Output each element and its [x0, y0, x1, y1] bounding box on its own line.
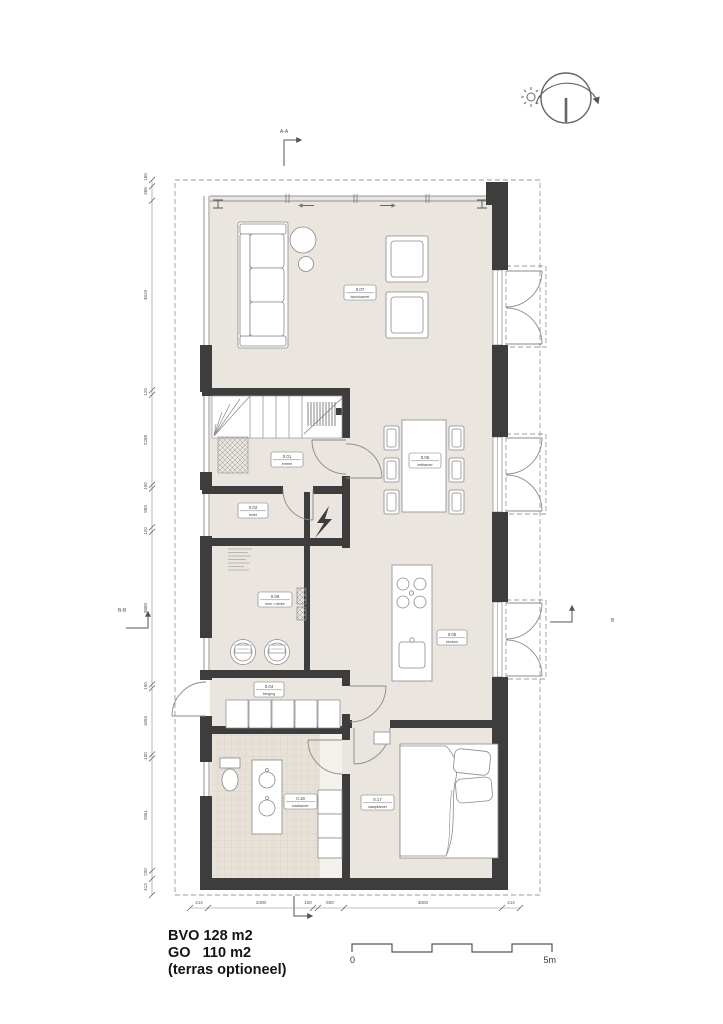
svg-text:120: 120: [143, 527, 148, 535]
svg-text:2288: 2288: [143, 434, 148, 445]
svg-text:200: 200: [143, 868, 148, 876]
title-note: (terras optioneel): [168, 962, 287, 978]
svg-text:berging: berging: [263, 692, 275, 696]
sofa: [238, 222, 288, 348]
svg-text:100: 100: [143, 482, 148, 490]
svg-text:414: 414: [195, 900, 203, 905]
svg-text:983: 983: [143, 505, 148, 513]
floor-plan-page: 0.07 woonkamer 0.06 eetkamer 0.01 entree…: [0, 0, 723, 1024]
toilet-cistern: [220, 758, 240, 768]
svg-text:3600: 3600: [418, 900, 429, 905]
armchair: [386, 292, 428, 338]
room-label-berging: 0.04 berging: [254, 682, 284, 697]
svg-text:tech. ruimte: tech. ruimte: [265, 602, 284, 606]
terrace-doors-2: [506, 438, 542, 511]
svg-text:120: 120: [143, 388, 148, 396]
room-label-badkamer: 0.18 badkamer: [284, 794, 317, 809]
svg-text:600: 600: [326, 900, 334, 905]
section-arrow-right: [550, 606, 572, 622]
svg-text:0.07: 0.07: [356, 287, 365, 292]
scale-bar: 0 5m: [350, 944, 556, 965]
room-label-eetkamer: 0.06 eetkamer: [409, 453, 441, 468]
scale-start: 0: [350, 955, 355, 965]
svg-text:entree: entree: [282, 462, 292, 466]
svg-text:slaapkamer: slaapkamer: [368, 805, 388, 809]
duct: [297, 588, 306, 604]
svg-text:368: 368: [143, 187, 148, 195]
title-bvo: BVO 128 m2: [168, 928, 253, 944]
sun-icon: [521, 87, 541, 107]
title-go: GO 110 m2: [168, 945, 251, 961]
room-label-tech: 0.09 tech. ruimte: [258, 592, 292, 607]
svg-text:414: 414: [507, 900, 515, 905]
svg-text:2400: 2400: [256, 900, 267, 905]
cabinet: [318, 838, 342, 858]
svg-text:0.01: 0.01: [283, 454, 292, 459]
svg-text:badkamer: badkamer: [292, 804, 309, 808]
cabinet: [318, 790, 342, 814]
section-arrow-bottom: [294, 896, 312, 916]
cabinet: [318, 814, 342, 838]
storage-shelves: [226, 700, 340, 728]
armchair: [386, 236, 428, 282]
svg-text:0.05: 0.05: [448, 632, 457, 637]
svg-text:100: 100: [304, 900, 312, 905]
duvet: [400, 746, 457, 856]
svg-text:100: 100: [143, 682, 148, 690]
berging-exterior-door: [172, 682, 206, 716]
svg-text:1684: 1684: [143, 715, 148, 726]
svg-text:4819: 4819: [143, 289, 148, 300]
doormat: [218, 437, 248, 473]
washbasin: [259, 772, 275, 788]
svg-text:0.06: 0.06: [421, 455, 430, 460]
compass: [521, 73, 598, 123]
floor-plan-drawing: 0.07 woonkamer 0.06 eetkamer 0.01 entree…: [0, 0, 723, 1024]
nightstand: [374, 732, 390, 744]
svg-text:160: 160: [143, 173, 148, 181]
sink: [399, 642, 425, 668]
svg-text:100: 100: [143, 752, 148, 760]
svg-text:0.18: 0.18: [296, 796, 305, 801]
svg-text:2861: 2861: [143, 809, 148, 820]
section-label-bb: B-B: [118, 608, 127, 614]
washbasin: [259, 800, 275, 816]
title-block: BVO 128 m2 GO 110 m2 (terras optioneel): [168, 928, 287, 978]
scale-end: 5m: [543, 955, 556, 965]
room-label-toilet: 0.02 toilet: [238, 503, 268, 518]
section-arrow-left: [126, 612, 148, 628]
svg-text:0.04: 0.04: [265, 684, 274, 689]
section-label-b: B: [611, 618, 615, 624]
room-label-slaapkamer: 0.17 slaapkamer: [361, 795, 394, 810]
svg-text:keuken: keuken: [446, 640, 458, 644]
pillow: [453, 748, 491, 776]
dimension-chain-left: 160 368 4819 120 2288 100 983 120 3880 1…: [143, 173, 155, 898]
svg-text:toilet: toilet: [249, 513, 257, 517]
svg-text:woonkamer: woonkamer: [350, 295, 370, 299]
svg-text:0.09: 0.09: [271, 594, 280, 599]
section-arrow-top: [284, 140, 301, 166]
toilet-bowl: [222, 769, 238, 791]
svg-text:3880: 3880: [143, 602, 148, 613]
kitchen-island: [392, 565, 432, 681]
dimension-chain-bottom: 414 2400 100 600 3600 414: [187, 900, 523, 911]
duct: [297, 607, 306, 620]
svg-text:413: 413: [143, 883, 148, 891]
room-label-woonkamer: 0.07 woonkamer: [344, 285, 376, 300]
svg-text:0.17: 0.17: [373, 797, 382, 802]
room-label-keuken: 0.05 keuken: [437, 630, 467, 645]
svg-text:eetkamer: eetkamer: [417, 463, 433, 467]
room-label-entree: 0.01 entree: [271, 452, 303, 467]
svg-text:0.02: 0.02: [249, 505, 258, 510]
pillow: [455, 776, 493, 803]
faucet: [410, 638, 414, 642]
section-label-aa: A-A: [280, 129, 289, 135]
terrace-doors-1: [506, 271, 542, 344]
terrace-doors-3: [506, 603, 542, 676]
